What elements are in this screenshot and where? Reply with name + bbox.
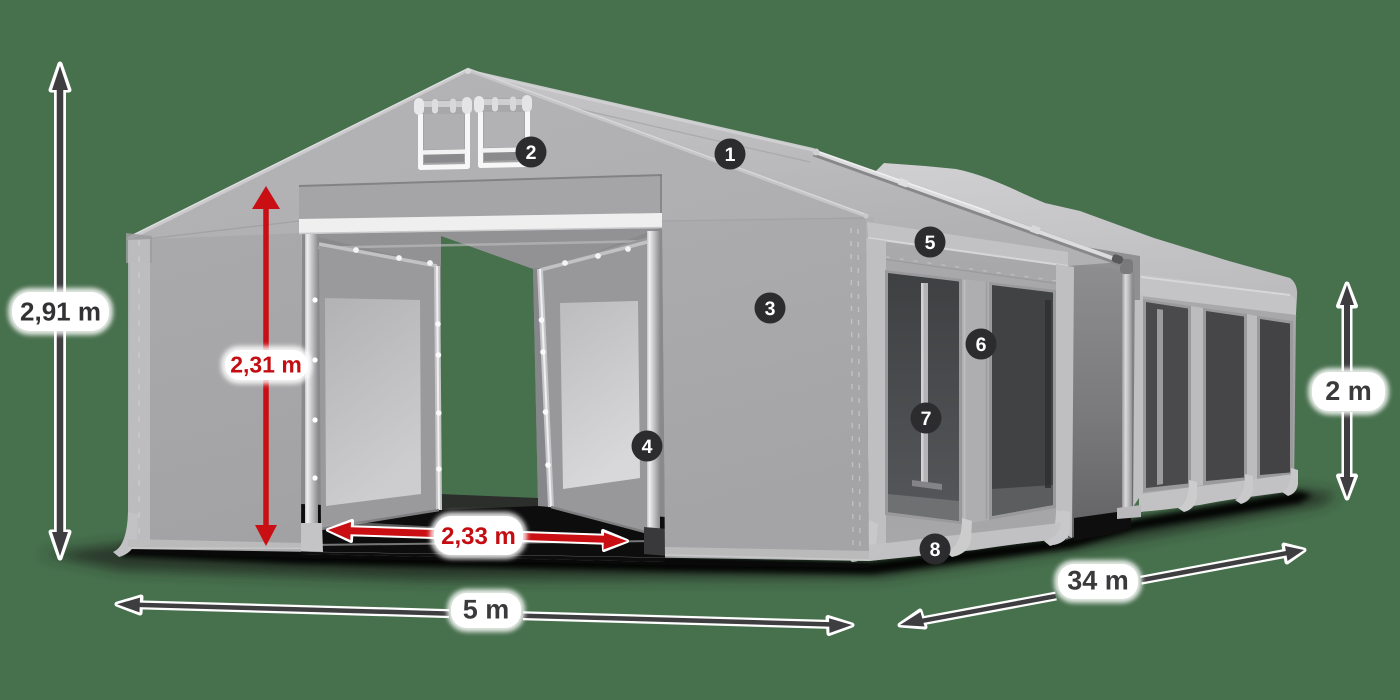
- svg-text:7: 7: [921, 408, 932, 430]
- svg-text:2 m: 2 m: [1325, 376, 1372, 406]
- svg-text:6: 6: [976, 334, 987, 356]
- svg-text:2,33 m: 2,33 m: [441, 523, 516, 550]
- svg-text:3: 3: [765, 298, 776, 320]
- svg-text:2: 2: [526, 142, 537, 164]
- svg-text:1: 1: [725, 144, 736, 166]
- svg-text:2,31 m: 2,31 m: [230, 352, 302, 378]
- svg-text:5: 5: [925, 232, 936, 254]
- svg-text:2,91 m: 2,91 m: [20, 297, 101, 327]
- svg-text:8: 8: [930, 539, 941, 561]
- svg-text:5 m: 5 m: [463, 595, 510, 625]
- svg-text:34 m: 34 m: [1067, 566, 1129, 596]
- svg-text:4: 4: [642, 436, 653, 458]
